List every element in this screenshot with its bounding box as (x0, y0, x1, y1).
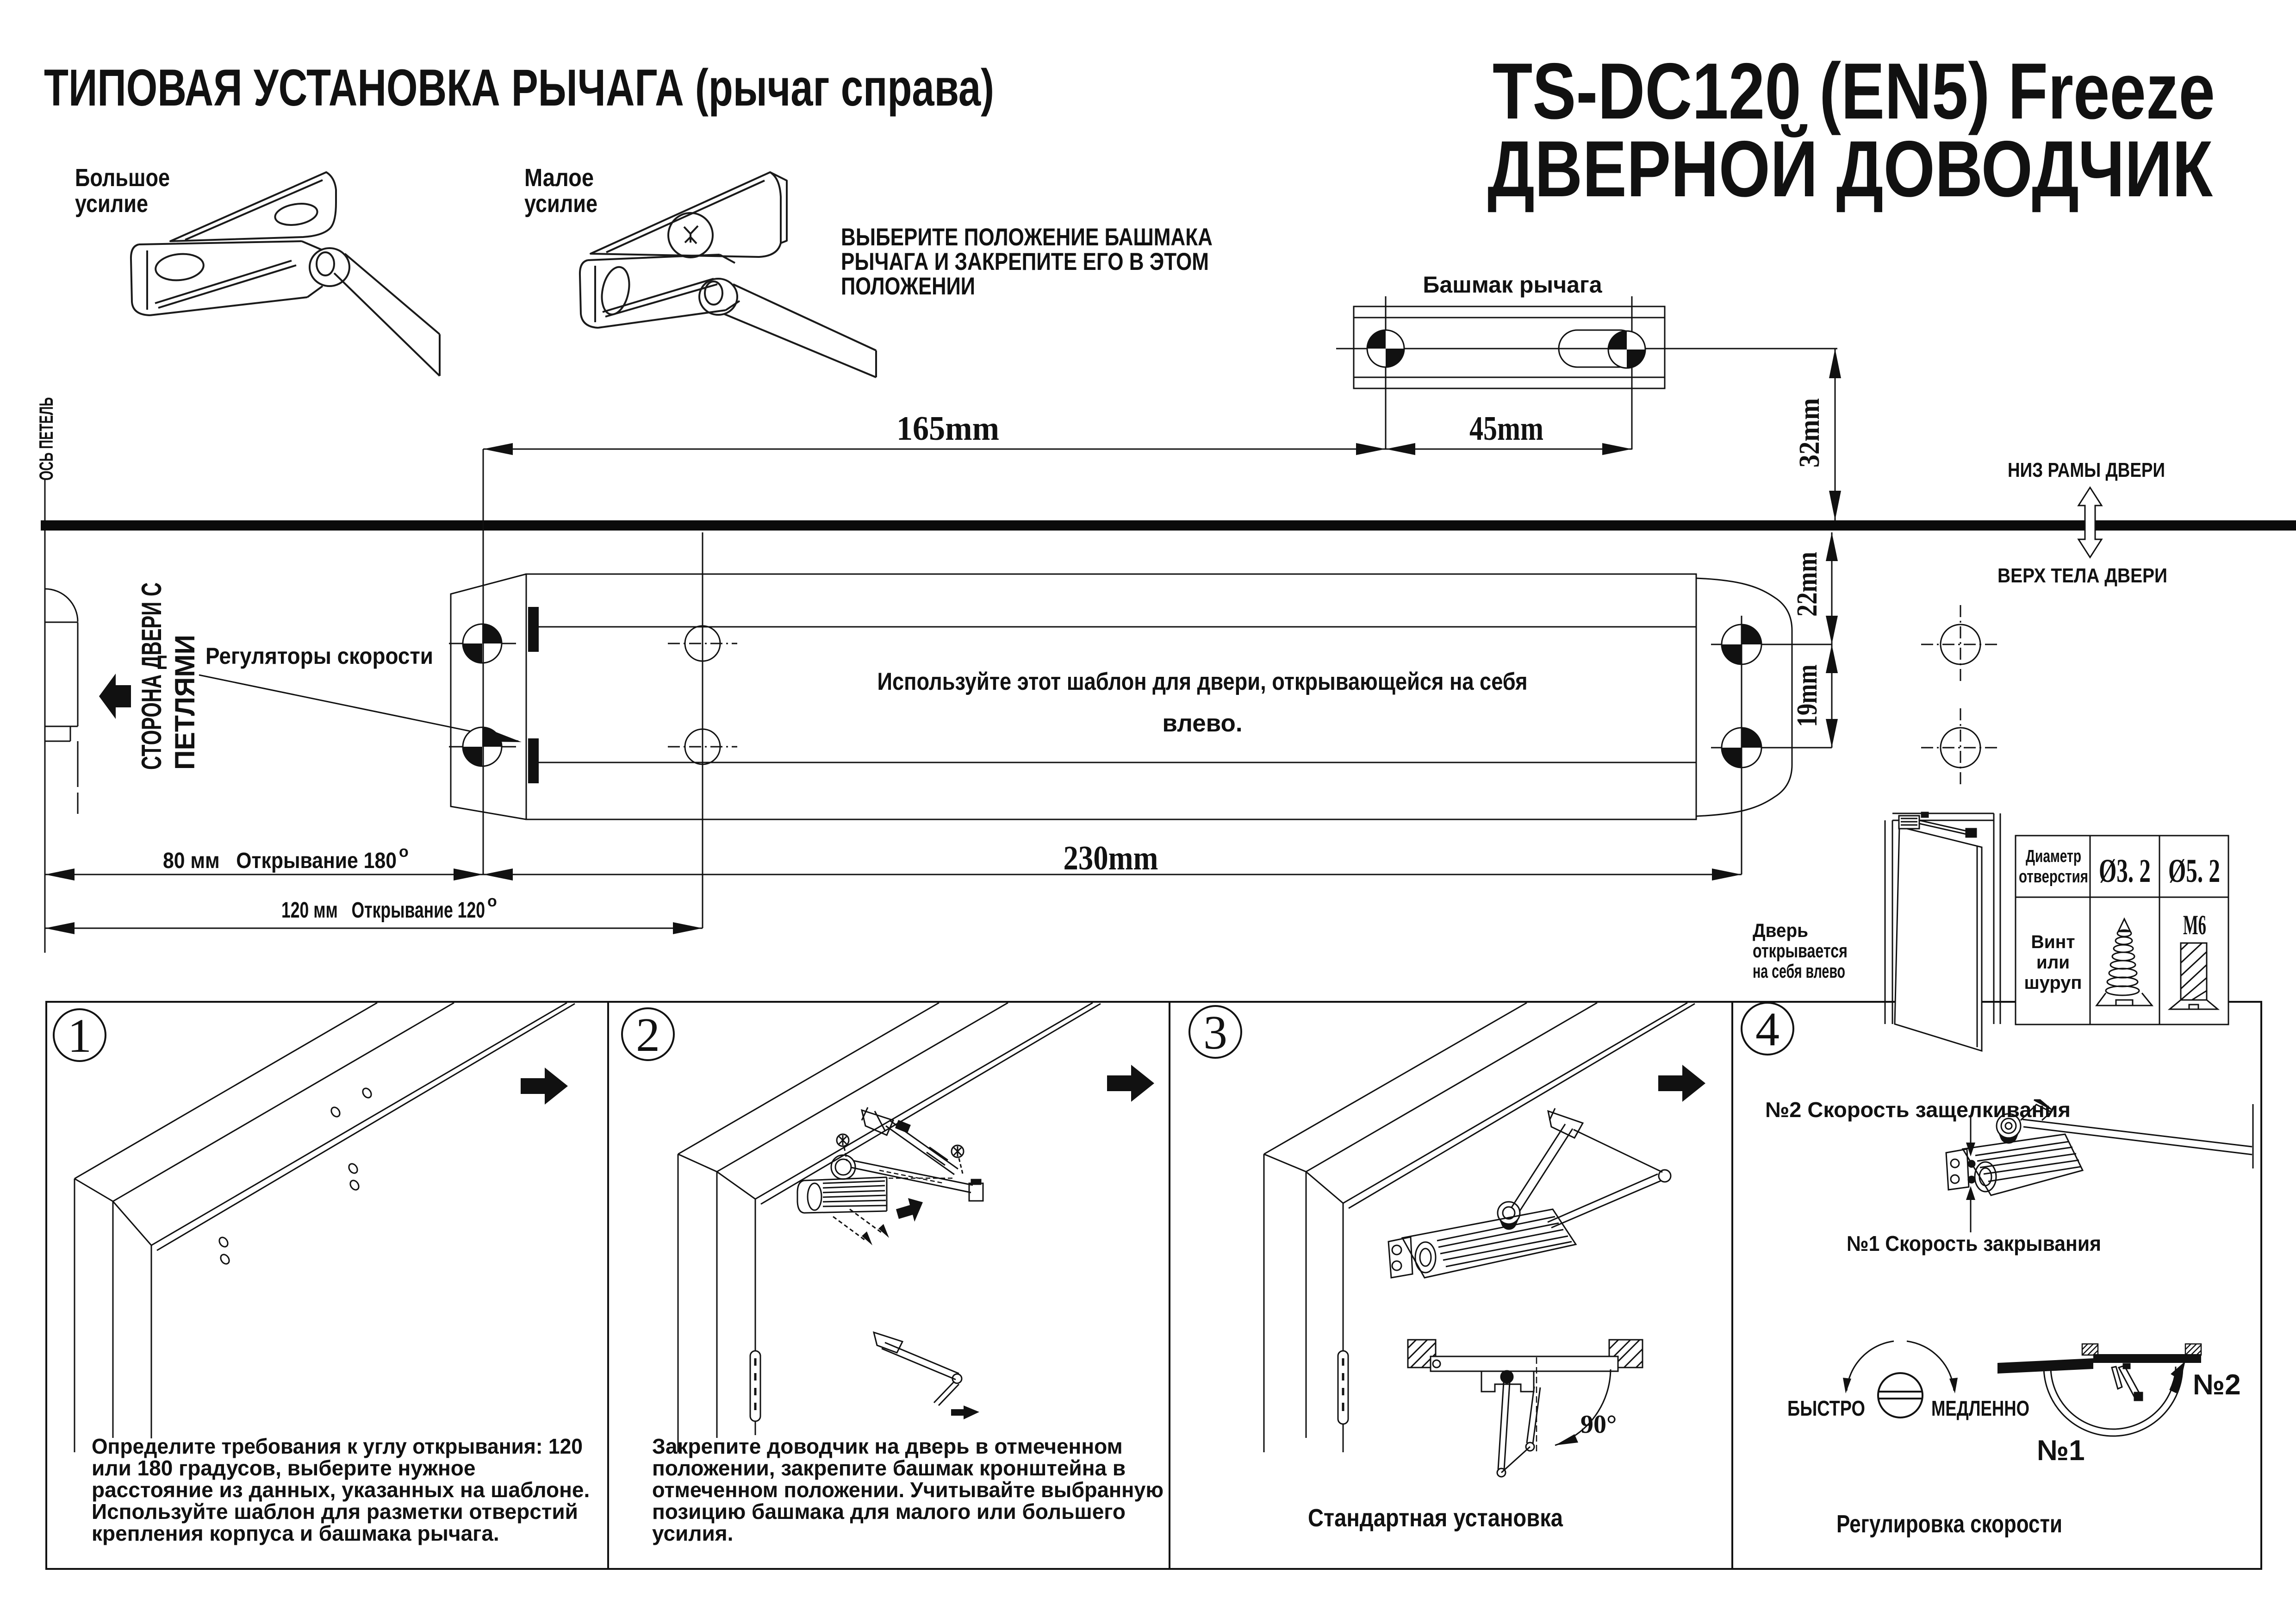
svg-text:ДВЕРНОЙ ДОВОДЧИК: ДВЕРНОЙ ДОВОДЧИК (1487, 124, 2213, 213)
svg-text:расстояние из данных, указанны: расстояние из данных, указанных на шабло… (92, 1478, 590, 1502)
svg-text:Ø5. 2: Ø5. 2 (2168, 852, 2220, 889)
svg-text:крепления корпуса и башмака ры: крепления корпуса и башмака рычага. (92, 1521, 499, 1545)
svg-text:№2: №2 (2193, 1369, 2241, 1401)
svg-text:Регулировка скорости: Регулировка скорости (1836, 1510, 2062, 1538)
svg-text:Винт: Винт (2031, 932, 2075, 952)
svg-text:НИЗ РАМЫ ДВЕРИ: НИЗ РАМЫ ДВЕРИ (2008, 459, 2165, 481)
svg-text:РЫЧАГА И ЗАКРЕПИТЕ ЕГО В ЭТОМ: РЫЧАГА И ЗАКРЕПИТЕ ЕГО В ЭТОМ (841, 248, 1209, 275)
svg-text:отмеченном положении. Учитывай: отмеченном положении. Учитывайте выбранн… (652, 1478, 1164, 1502)
svg-text:120 мм Открывание 120: 120 мм Открывание 120 (281, 898, 485, 923)
svg-text:БЫСТРО: БЫСТРО (1787, 1396, 1865, 1420)
svg-text:Закрепите доводчик на дверь в: Закрепите доводчик на дверь в отмеченном (652, 1434, 1123, 1458)
svg-text:усилия.: усилия. (652, 1521, 733, 1545)
svg-text:2: 2 (636, 1008, 660, 1062)
svg-text:80 мм Открывание 180: 80 мм Открывание 180 (163, 849, 397, 873)
svg-text:19mm: 19mm (1792, 665, 1823, 727)
svg-text:позицию башмака для малого или: позицию башмака для малого или большего (652, 1499, 1126, 1524)
svg-text:90°: 90° (1580, 1410, 1617, 1439)
svg-text:усилие: усилие (75, 190, 148, 218)
svg-text:Используйте этот шаблон для дв: Используйте этот шаблон для двери, откры… (877, 668, 1528, 695)
svg-text:32mm: 32mm (1794, 398, 1825, 468)
svg-text:Диаметр: Диаметр (2026, 847, 2081, 866)
svg-text:230mm: 230mm (1064, 839, 1158, 877)
svg-text:Используйте шаблон для разметк: Используйте шаблон для разметки отверсти… (92, 1499, 578, 1524)
svg-text:Дверь: Дверь (1753, 919, 1808, 941)
svg-text:№1 Скорость закрывания: №1 Скорость закрывания (1847, 1231, 2101, 1255)
svg-text:шуруп: шуруп (2024, 973, 2082, 993)
svg-text:ПЕТЛЯМИ: ПЕТЛЯМИ (169, 635, 200, 770)
svg-text:или: или (2036, 952, 2070, 973)
svg-text:Малое: Малое (524, 164, 594, 192)
svg-text:1: 1 (68, 1009, 92, 1062)
svg-text:отверстия: отверстия (2019, 867, 2088, 887)
svg-text:СТОРОНА ДВЕРИ С: СТОРОНА ДВЕРИ С (136, 582, 167, 770)
svg-text:3: 3 (1203, 1006, 1227, 1059)
svg-text:открывается: открывается (1753, 940, 1848, 962)
svg-text:влево.: влево. (1162, 710, 1242, 737)
svg-text:о: о (487, 893, 497, 910)
svg-text:ВЕРХ ТЕЛА ДВЕРИ: ВЕРХ ТЕЛА ДВЕРИ (1997, 564, 2167, 587)
svg-text:22mm: 22mm (1792, 552, 1823, 617)
svg-text:Стандартная установка: Стандартная установка (1308, 1504, 1563, 1532)
svg-text:ТИПОВАЯ УСТАНОВКА РЫЧАГА (рыча: ТИПОВАЯ УСТАНОВКА РЫЧАГА (рычаг справа) (44, 59, 994, 117)
svg-text:Ø3. 2: Ø3. 2 (2099, 852, 2151, 889)
svg-text:№1: №1 (2037, 1435, 2085, 1467)
svg-text:ВЫБЕРИТЕ ПОЛОЖЕНИЕ БАШМАКА: ВЫБЕРИТЕ ПОЛОЖЕНИЕ БАШМАКА (841, 224, 1213, 251)
svg-text:усилие: усилие (524, 190, 597, 218)
svg-text:45mm: 45mm (1469, 410, 1543, 448)
svg-text:ОСЬ ПЕТЕЛЬ: ОСЬ ПЕТЕЛЬ (35, 397, 57, 481)
svg-text:Башмак рычага: Башмак рычага (1423, 272, 1602, 298)
svg-text:или 180 градусов, выберите нуж: или 180 градусов, выберите нужное (92, 1456, 475, 1480)
svg-text:ПОЛОЖЕНИИ: ПОЛОЖЕНИИ (841, 273, 975, 300)
svg-text:МЕДЛЕННО: МЕДЛЕННО (1931, 1396, 2029, 1420)
svg-text:№2 Скорость защелкивания: №2 Скорость защелкивания (1765, 1098, 2071, 1122)
svg-text:165mm: 165mm (896, 410, 999, 448)
svg-text:Регуляторы скорости: Регуляторы скорости (205, 643, 433, 669)
svg-text:4: 4 (1755, 1003, 1780, 1056)
svg-text:на себя влево: на себя влево (1753, 960, 1845, 982)
svg-text:положении, закрепите башмак кр: положении, закрепите башмак кронштейна в (652, 1456, 1126, 1480)
svg-text:о: о (399, 843, 409, 861)
svg-text:TS-DC120 (EN5) Freeze: TS-DC120 (EN5) Freeze (1493, 47, 2215, 136)
svg-text:Большое: Большое (75, 164, 170, 192)
svg-text:M6: M6 (2183, 910, 2206, 940)
svg-text:Определите требования к углу о: Определите требования к углу открывания:… (92, 1434, 583, 1458)
